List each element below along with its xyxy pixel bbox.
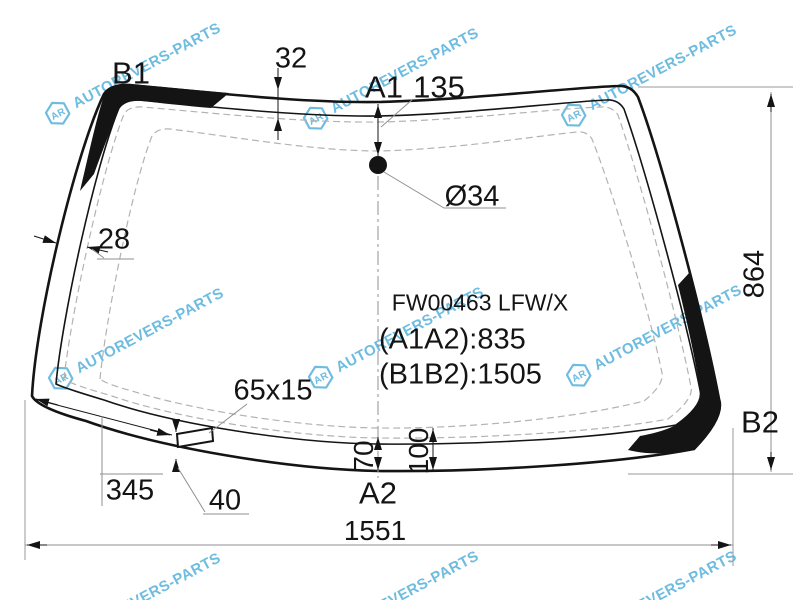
dim-1551: 1551 bbox=[344, 517, 406, 545]
label-a1: A1 bbox=[365, 72, 403, 103]
dim-b1b2: (B1B2):1505 bbox=[379, 361, 542, 390]
glass-outer-outline bbox=[32, 85, 720, 471]
dim-32: 32 bbox=[275, 45, 307, 74]
dim-70: 70 bbox=[350, 440, 378, 471]
sensor-hole bbox=[369, 156, 387, 174]
dim-a1a2: (A1A2):835 bbox=[379, 326, 526, 355]
dim-135: 135 bbox=[413, 72, 465, 103]
dim-345: 345 bbox=[106, 477, 154, 506]
dim28-arrow-right bbox=[34, 236, 56, 243]
label-b1: B1 bbox=[112, 58, 150, 89]
bottom-right-black-band bbox=[628, 272, 720, 453]
dim-100: 100 bbox=[405, 428, 433, 475]
windshield-diagram-page: AR AUTOREVERS-PARTS AR AUTOREVERS-PARTS … bbox=[0, 0, 800, 600]
label-a2: A2 bbox=[359, 478, 397, 509]
part-code: FW00463 LFW/X bbox=[392, 292, 568, 315]
dim-864: 864 bbox=[741, 250, 770, 298]
dim40-leader bbox=[178, 468, 205, 512]
dim-28: 28 bbox=[98, 226, 130, 255]
label-b2: B2 bbox=[741, 407, 779, 438]
mirror-bracket-rect bbox=[177, 428, 213, 447]
dim-40: 40 bbox=[209, 487, 241, 516]
dim-hole-diameter: Ø34 bbox=[445, 183, 500, 212]
dim-65x15: 65x15 bbox=[233, 377, 312, 406]
dim345-arrow-right bbox=[150, 430, 170, 435]
bracket-leader bbox=[209, 404, 247, 433]
